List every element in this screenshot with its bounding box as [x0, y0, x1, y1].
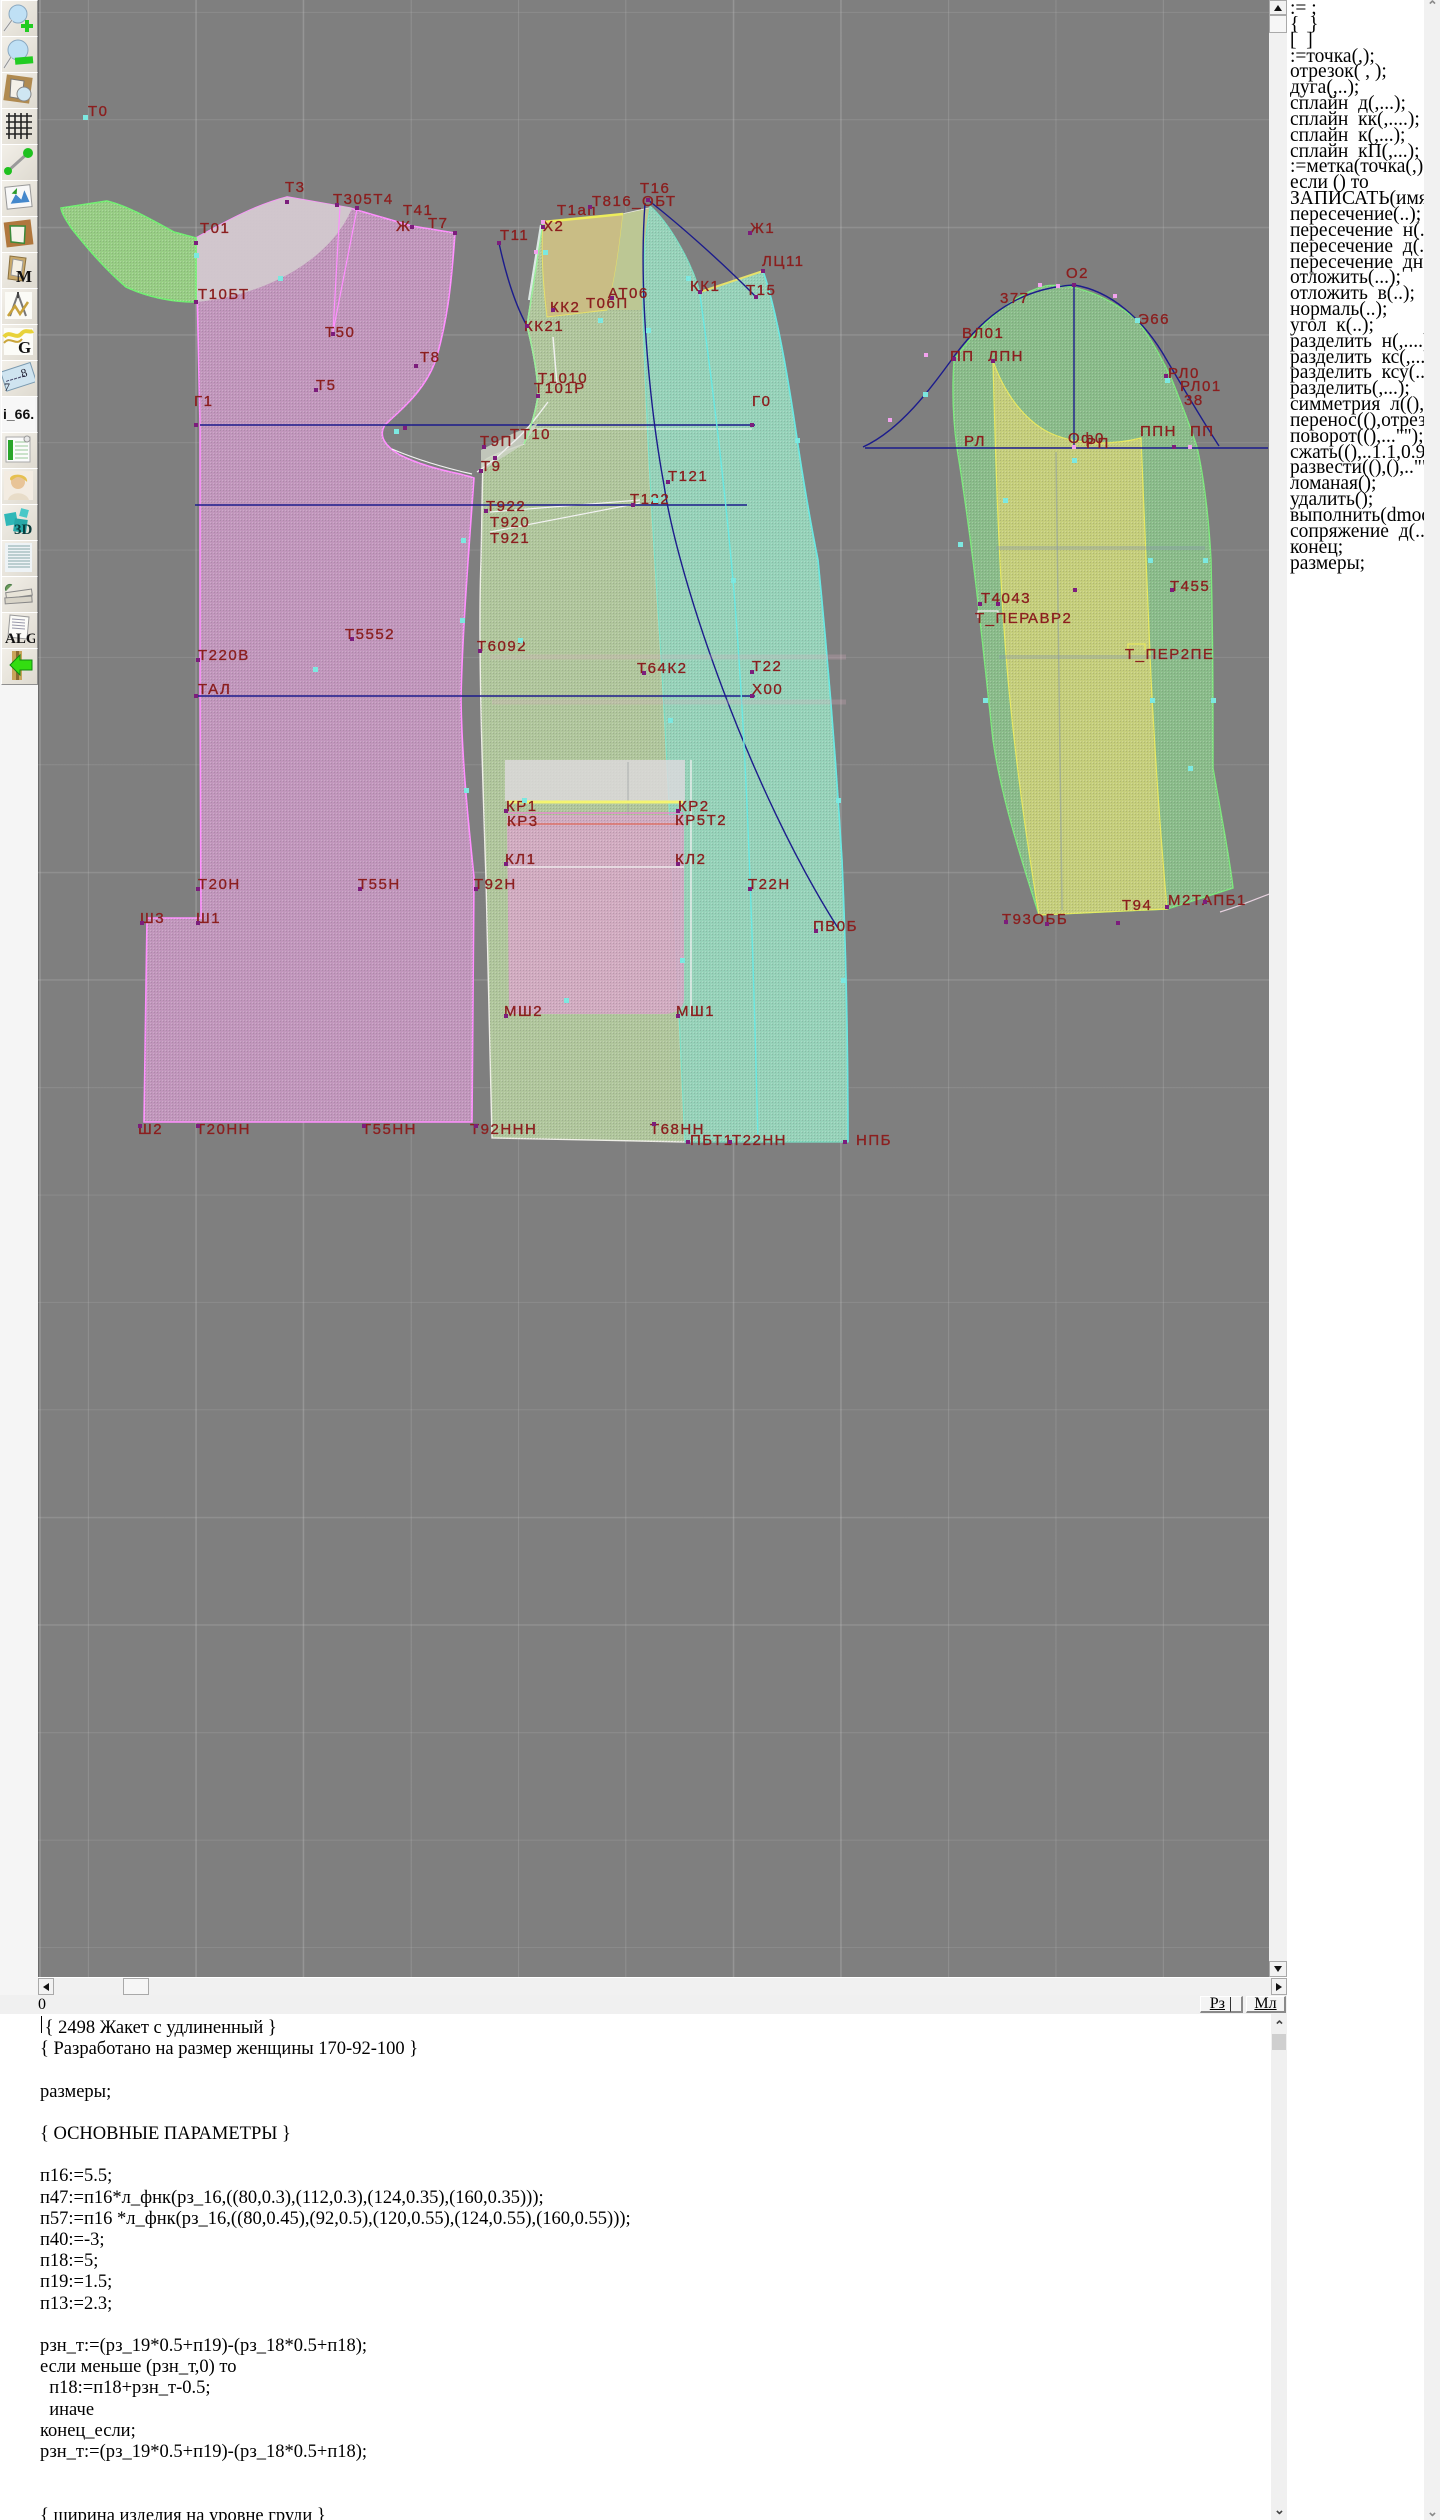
- svg-text:КК2: КК2: [550, 299, 580, 316]
- svg-text:Т121: Т121: [668, 468, 708, 485]
- svg-text:Х2: Х2: [543, 218, 564, 235]
- svg-text:Ш2: Ш2: [138, 1121, 163, 1138]
- svg-text:КЛ1: КЛ1: [505, 851, 536, 868]
- svg-text:Т8: Т8: [420, 349, 441, 366]
- svg-text:ВЛ01: ВЛ01: [962, 325, 1004, 342]
- svg-text:Т9: Т9: [481, 458, 502, 475]
- svg-text:Т22: Т22: [752, 658, 782, 675]
- svg-text:377: 377: [1000, 290, 1030, 307]
- svg-text:ПП: ПП: [1190, 423, 1215, 440]
- svg-text:ЛЦ11: ЛЦ11: [762, 253, 805, 270]
- svg-text:Т20Н: Т20Н: [198, 876, 241, 893]
- svg-text:АВР2: АВР2: [1028, 610, 1072, 627]
- svg-text:Т1ап: Т1ап: [557, 202, 597, 219]
- svg-text:Ж1: Ж1: [750, 220, 775, 237]
- svg-text:Т922: Т922: [486, 498, 526, 515]
- svg-text:38: 38: [1184, 392, 1204, 409]
- svg-text:7: 7: [4, 380, 10, 394]
- svg-text:КР5Т2: КР5Т2: [675, 812, 727, 829]
- svg-text:Т7: Т7: [428, 215, 449, 232]
- svg-text:РЛ: РЛ: [964, 433, 986, 450]
- svg-text:Т22НН: Т22НН: [732, 1132, 787, 1149]
- svg-text:НПБ: НПБ: [856, 1132, 892, 1149]
- svg-text:Т20НН: Т20НН: [196, 1121, 251, 1138]
- svg-text:Т15: Т15: [746, 282, 776, 299]
- svg-text:Т94: Т94: [1122, 897, 1152, 914]
- svg-text:Х00: Х00: [752, 681, 783, 698]
- svg-text:ПБТ1: ПБТ1: [690, 1132, 733, 1149]
- svg-text:Т22Н: Т22Н: [748, 876, 791, 893]
- svg-text:М2ТАПБ1: М2ТАПБ1: [1168, 892, 1247, 909]
- svg-text:МШ1: МШ1: [676, 1003, 715, 1020]
- svg-text:Т305Т4: Т305Т4: [333, 191, 394, 208]
- svg-text:i_66.: i_66.: [3, 406, 34, 422]
- svg-text:Г1: Г1: [194, 393, 213, 410]
- svg-text:M: M: [16, 267, 32, 286]
- svg-text:КР3: КР3: [507, 813, 539, 830]
- svg-text:Ж: Ж: [396, 218, 411, 235]
- svg-text:Т920: Т920: [490, 514, 530, 531]
- svg-text:Т92Н: Т92Н: [474, 876, 517, 893]
- svg-text:Т122: Т122: [630, 491, 670, 508]
- svg-text:Т55Н: Т55Н: [358, 876, 401, 893]
- svg-text:Т0: Т0: [88, 103, 109, 120]
- svg-text:G: G: [18, 338, 31, 357]
- svg-text:Т55НН: Т55НН: [362, 1121, 417, 1138]
- svg-text:Э66: Э66: [1138, 311, 1170, 328]
- svg-text:Т_ПЕР: Т_ПЕР: [975, 610, 1031, 627]
- svg-text:Т3: Т3: [285, 179, 306, 196]
- svg-text:РП: РП: [1086, 435, 1110, 452]
- svg-text:Т_ПЕР2ПЕ: Т_ПЕР2ПЕ: [1125, 646, 1214, 663]
- svg-text:ПВ0Б: ПВ0Б: [813, 918, 858, 935]
- svg-text:Т220В: Т220В: [198, 647, 250, 664]
- svg-text:КК21: КК21: [524, 318, 564, 335]
- svg-text:О2: О2: [1066, 265, 1089, 282]
- svg-text:ПП: ПП: [950, 348, 975, 365]
- svg-text:ППН: ППН: [1140, 423, 1177, 440]
- svg-text:Т11: Т11: [500, 227, 529, 244]
- svg-text:ALG: ALG: [5, 631, 35, 646]
- svg-text:Т50: Т50: [325, 324, 355, 341]
- svg-text:Т01: Т01: [200, 220, 230, 237]
- svg-text:Т93ОББ: Т93ОББ: [1002, 911, 1068, 928]
- svg-text:Т06П: Т06П: [586, 295, 629, 312]
- svg-text:Т5: Т5: [316, 377, 337, 394]
- svg-text:ТАЛ: ТАЛ: [198, 681, 231, 698]
- svg-text:ТТ10: ТТ10: [510, 426, 551, 443]
- svg-text:Т4043: Т4043: [981, 590, 1031, 607]
- svg-text:Г0: Г0: [752, 393, 771, 410]
- svg-text:Т455: Т455: [1170, 578, 1210, 595]
- svg-text:Т16: Т16: [640, 180, 670, 197]
- svg-text:3D: 3D: [14, 522, 33, 538]
- svg-text:МШ2: МШ2: [504, 1003, 543, 1020]
- svg-text:Т921: Т921: [490, 530, 530, 547]
- svg-text:КК1: КК1: [690, 278, 720, 295]
- svg-text:Т10БТ: Т10БТ: [198, 286, 250, 303]
- svg-text:Т101Р: Т101Р: [534, 380, 586, 397]
- svg-text:Т92ННН: Т92ННН: [470, 1121, 537, 1138]
